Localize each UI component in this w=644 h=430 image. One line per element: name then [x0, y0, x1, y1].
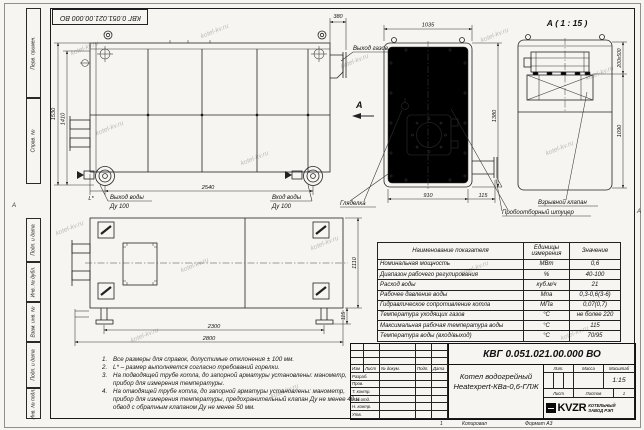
plan-center-hatch: [123, 243, 157, 285]
col-list: Лист: [364, 365, 380, 372]
dim-1090: 1090: [617, 124, 623, 137]
cell: [416, 411, 432, 419]
corner-latch-icon: [98, 222, 329, 299]
spec-cell: 0,3-0,6(3-6): [570, 290, 621, 300]
signature-row: Разраб.: [351, 373, 448, 381]
cell: [380, 373, 416, 380]
col-doc: № докум.: [380, 365, 416, 372]
title-block-right-stack: Лит. Масса Масштаб 1:15 Лист Листов 1 KV…: [543, 365, 635, 418]
cell: [351, 344, 364, 350]
detail-title: А ( 1 : 15 ): [546, 18, 588, 28]
spec-row: Температура уходящих газов °С не более 2…: [378, 310, 621, 320]
footer-format-label: Формат А3: [525, 421, 552, 427]
section-arrow-a: A: [352, 100, 374, 119]
note-text: На отводящей трубе котла, до запорной ар…: [113, 388, 362, 412]
spec-cell: Максимальная рабочая температура воды: [378, 321, 524, 331]
dim-115-foot: 115: [341, 312, 347, 320]
spec-cell: не более 220: [570, 310, 621, 320]
frame-strip-sprav-no: Справ. №: [26, 98, 41, 184]
frame-strip-label: Инв. № подл.: [31, 388, 37, 419]
spec-cell: °С: [524, 310, 570, 320]
sheet-label: Лист: [544, 389, 574, 397]
scale-label: Масштаб: [604, 365, 634, 372]
dim-910: 910: [423, 193, 433, 199]
title-block: Изм Лист № докум. Подп. Дата Разраб. Про…: [350, 343, 636, 420]
col-date: Дата: [432, 365, 448, 372]
gas-outlet-label: Выход газов: [353, 46, 388, 52]
water-out-label: Выход воды: [110, 195, 144, 201]
note-text: L* – размер выполняется согласно требова…: [113, 364, 362, 372]
note-text: На подводящей трубе котла, до запорной а…: [113, 372, 362, 388]
cell: [416, 388, 432, 395]
note-text: Все размеры для справок, допустимые откл…: [113, 356, 362, 364]
spec-cell: 21: [570, 280, 621, 290]
frame-strip-perv-primen: Перв. примен.: [26, 8, 41, 98]
spec-cell: МПа: [524, 300, 570, 310]
company-name: КОТЕЛЬНЫЙ ЗАВОД РЭП: [588, 403, 615, 414]
cell: [351, 358, 364, 364]
lifting-eye-icon: [104, 31, 326, 39]
cell: [380, 358, 416, 364]
zone-letter-left: А: [12, 203, 16, 209]
company-line2: ЗАВОД РЭП: [588, 408, 615, 413]
cell: [564, 373, 574, 388]
frame-strip-label: Подп. и дата: [31, 224, 37, 255]
section-letter: A: [355, 100, 363, 110]
detail-dimensions: 200х500 1090: [593, 42, 627, 188]
spec-header-units: Единицы измерения: [524, 243, 570, 260]
spec-table: Наименование показателя Единицы измерени…: [377, 242, 621, 342]
dim-1035: 1035: [422, 23, 435, 29]
spec-header-name: Наименование показателя: [378, 243, 524, 260]
frame-strip-inv-dubl: Инв. № дубл.: [26, 262, 41, 302]
cell: [416, 373, 432, 380]
lit-label: Лит.: [544, 365, 574, 372]
frame-strip-label: Перв. примен.: [31, 36, 37, 69]
signature-grid-header: Изм Лист № докум. Подп. Дата: [351, 365, 448, 373]
signature-row: Т. контр.: [351, 388, 448, 396]
sight-glass-label: Гляделка: [340, 201, 366, 207]
signature-row: Утв.: [351, 411, 448, 419]
gas-outlet-duct: [330, 52, 346, 78]
note-number: 2.: [102, 364, 113, 372]
note-number: 1.: [102, 356, 113, 364]
dim-2800: 2800: [202, 336, 216, 342]
spec-cell: Мпа: [524, 290, 570, 300]
zone-letter-right: А: [637, 209, 641, 215]
dim-1380: 1380: [492, 109, 498, 122]
water-out-dn: Ду 100: [109, 204, 130, 210]
spec-cell: Рабочее давление воды: [378, 290, 524, 300]
cell: [554, 373, 564, 388]
role-label: Нач.отд.: [351, 396, 380, 403]
frame-strip-label: Справ. №: [31, 130, 37, 153]
side-view: 1530 1410 2540 L* 380 Выход газов Выход …: [51, 14, 394, 210]
dim-l-star: L*: [88, 196, 94, 202]
spec-cell: %: [524, 270, 570, 280]
cell: [380, 381, 416, 388]
spec-row: Рабочее давление воды Мпа 0,3-0,6(3-6): [378, 290, 621, 300]
cell: [432, 403, 448, 410]
frame-strip-label: Инв. № дубл.: [31, 267, 37, 298]
dim-2540: 2540: [201, 185, 215, 191]
note-number: 4.: [102, 388, 113, 412]
side-view-labels: Выход газов Выход воды Ду 100 Вход воды …: [100, 46, 394, 210]
water-flange-right: [285, 167, 323, 186]
product-name-line2: Heatexpert-КВа-0,6-ГЛЖ: [449, 382, 543, 392]
spec-table-header: Наименование показателя Единицы измерени…: [378, 243, 621, 260]
col-sign: Подп.: [416, 365, 432, 372]
role-label: Пров.: [351, 381, 380, 388]
cell: [432, 373, 448, 380]
product-name-line1: Котел водогрейный: [449, 372, 543, 382]
spec-cell: 40-100: [570, 270, 621, 280]
cell: [380, 411, 416, 419]
signature-row: Пров.: [351, 381, 448, 389]
dim-1110: 1110: [352, 256, 358, 269]
cell: [380, 403, 416, 410]
spec-cell: °С: [524, 321, 570, 331]
role-label: Утв.: [351, 411, 380, 419]
explosion-valve-label: Взрывной клапан: [538, 199, 587, 206]
cell: [364, 358, 380, 364]
dim-380: 380: [333, 14, 343, 20]
footer-zone-number: 1: [440, 421, 443, 427]
cell: [364, 344, 380, 350]
spec-cell: Температура уходящих газов: [378, 310, 524, 320]
spec-row: Номинальная мощность МВт 0,6: [378, 260, 621, 270]
scale-value: 1:15: [604, 373, 634, 388]
sampling-label: Пробоотборный штуцер: [502, 209, 574, 216]
spec-cell: Диапазон рабочего регулирования: [378, 270, 524, 280]
role-label: Разраб.: [351, 373, 380, 380]
footer-copied-label: Копировал: [462, 421, 487, 427]
cell: [380, 388, 416, 395]
plan-view: 2300 2800 1110 115: [72, 218, 362, 346]
cell: [416, 396, 432, 403]
spec-row: Расход воды куб.м/ч 21: [378, 280, 621, 290]
plan-dimensions: 2300 2800 1110 115: [75, 218, 362, 346]
cell: [416, 358, 432, 364]
frame-strip-vzam-inv: Взам. инв. №: [26, 302, 41, 342]
note-4: 4. На отводящей трубе котла, до запорной…: [102, 388, 362, 412]
cell: [351, 351, 364, 357]
side-bracket: [70, 116, 90, 151]
cell: [432, 388, 448, 395]
cell: [416, 344, 432, 350]
dim-200x500: 200х500: [617, 48, 623, 68]
dim-1410: 1410: [61, 112, 67, 125]
drawing-notes: 1. Все размеры для справок, допустимые о…: [102, 356, 362, 412]
note-number: 3.: [102, 372, 113, 388]
product-name: Котел водогрейный Heatexpert-КВа-0,6-ГЛЖ: [448, 365, 543, 418]
frame-strip-label: Взам. инв. №: [31, 307, 37, 338]
spec-cell: Температура воды (вход/выход): [378, 331, 524, 341]
spec-cell: Гидравлическое сопротивление котла: [378, 300, 524, 310]
dim-2300: 2300: [207, 324, 221, 330]
cell: [416, 403, 432, 410]
cell: [416, 381, 432, 388]
support-feet: [75, 308, 333, 324]
spec-cell: 0,07(0,7): [570, 300, 621, 310]
spec-cell: 70/95: [570, 331, 621, 341]
cell: [432, 351, 448, 357]
mass-label: Масса: [574, 365, 604, 372]
title-block-signature-grid: Изм Лист № докум. Подп. Дата Разраб. Про…: [351, 344, 448, 419]
cell: [416, 351, 432, 357]
spec-cell: Расход воды: [378, 280, 524, 290]
note-1: 1. Все размеры для справок, допустимые о…: [102, 356, 362, 364]
col-izm: Изм: [351, 365, 364, 372]
spec-row: Гидравлическое сопротивление котла МПа 0…: [378, 300, 621, 310]
spec-cell: °С: [524, 331, 570, 341]
spec-row: Максимальная рабочая температура воды °С…: [378, 321, 621, 331]
cell: [380, 344, 416, 350]
spec-cell: Номинальная мощность: [378, 260, 524, 270]
spec-row: Температура воды (вход/выход) °С 70/95: [378, 331, 621, 341]
spec-row: Диапазон рабочего регулирования % 40-100: [378, 270, 621, 280]
frame-strip-podp-data1: Подп. и дата: [26, 218, 41, 262]
note-3: 3. На подводящей трубе котла, до запорно…: [102, 372, 362, 388]
dim-1530: 1530: [51, 107, 57, 120]
dim-115: 115: [479, 193, 489, 199]
kvzr-logo-text: KVZR: [558, 402, 587, 414]
mass-value: [574, 373, 604, 388]
kvzr-logo-icon: [546, 403, 556, 413]
spec-cell: 0,6: [570, 260, 621, 270]
spec-cell: МВт: [524, 260, 570, 270]
boiler-views-drawing: 1530 1410 2540 L* 380 Выход газов Выход …: [50, 8, 637, 224]
doc-number: КВГ 0.051.021.00.000 ВО: [448, 344, 635, 365]
spec-header-value: Значение: [570, 243, 621, 260]
spec-cell: 115: [570, 321, 621, 331]
sampling-pipe-stub: [472, 157, 497, 178]
explosion-valve: [524, 52, 593, 100]
plan-view-drawing: 2300 2800 1110 115: [55, 213, 385, 348]
role-label: Т. контр.: [351, 388, 380, 395]
detail-view-a: А ( 1 : 15 ): [518, 18, 627, 206]
sheets-label: Листов: [574, 389, 614, 397]
cell: [432, 344, 448, 350]
spec-cell: куб.м/ч: [524, 280, 570, 290]
frame-strip-podp-data2: Подп. и дата: [26, 342, 41, 388]
cell: [432, 396, 448, 403]
cell: [380, 396, 416, 403]
detail-labels: Взрывной клапан: [538, 92, 598, 206]
cell: [432, 381, 448, 388]
water-in-dn: Ду 100: [271, 204, 292, 210]
signature-row: Нач.отд.: [351, 396, 448, 404]
frame-strip-inv-podl: Инв. № подл.: [26, 388, 41, 419]
cell: [544, 373, 554, 388]
cell: [432, 358, 448, 364]
cell: [432, 411, 448, 419]
role-label: Н. контр.: [351, 403, 380, 410]
frame-strip-label: Подп. и дата: [31, 349, 37, 380]
sheets-value: 1: [614, 389, 634, 397]
cell: [364, 351, 380, 357]
drawing-sheet: kotel-kv.ru kotel-kv.ru kotel-kv.ru kote…: [0, 0, 644, 430]
cell: [380, 351, 416, 357]
company-logo: KVZR КОТЕЛЬНЫЙ ЗАВОД РЭП: [544, 398, 635, 418]
note-2: 2. L* – размер выполняется согласно треб…: [102, 364, 362, 372]
water-in-label: Вход воды: [272, 195, 302, 201]
signature-row: Н. контр.: [351, 403, 448, 411]
